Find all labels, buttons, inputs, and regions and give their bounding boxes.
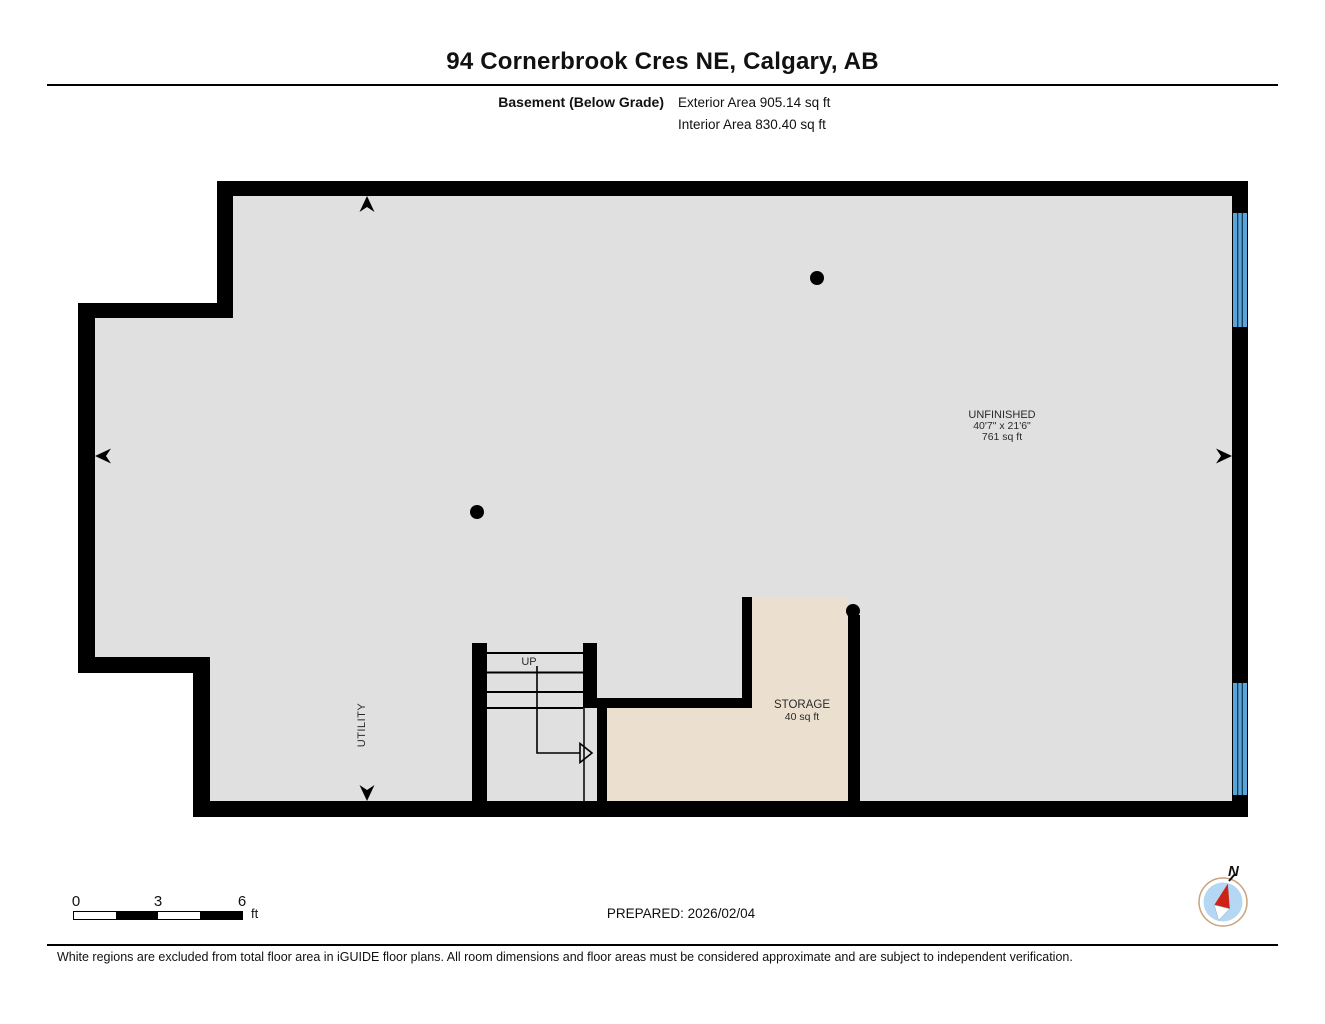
wall-bottom: [193, 801, 1248, 817]
camera-dot-3: [846, 604, 860, 618]
storage-room-label: STORAGE 40 sq ft: [722, 699, 882, 723]
storage-room-area: 40 sq ft: [722, 711, 882, 723]
scale-segment: [158, 912, 200, 919]
window-lower: [1233, 683, 1247, 795]
prepared-date: PREPARED: 2026/02/04: [481, 906, 881, 921]
wall-bottomleft-vertical: [193, 657, 210, 801]
scale-bar: [73, 911, 243, 920]
scale-segment: [116, 912, 158, 919]
wall-stair-right: [583, 643, 597, 708]
unfinished-room-area: 761 sq ft: [922, 432, 1082, 443]
wall-storage-inner-vertical: [742, 597, 752, 705]
scale-tick-0: 0: [66, 893, 86, 910]
wall-top: [217, 181, 1248, 196]
storage-room-name: STORAGE: [722, 699, 882, 711]
wall-storage-lower-left: [597, 698, 607, 801]
footer-disclaimer: White regions are excluded from total fl…: [57, 950, 1073, 964]
wall-topleft-vertical: [217, 181, 233, 318]
wall-bottomleft-step: [78, 657, 210, 673]
footer-divider: [47, 944, 1278, 946]
floorplan-drawing: [0, 0, 1325, 1024]
stairs-up-label: UP: [509, 656, 549, 668]
wall-left: [78, 303, 95, 673]
scale-unit-label: ft: [251, 906, 258, 921]
compass-north-label: N: [1228, 863, 1239, 880]
camera-dot-2: [470, 505, 484, 519]
scale-segment: [200, 912, 242, 919]
scale-tick-3: 3: [148, 893, 168, 910]
wall-stair-left: [472, 643, 487, 801]
wall-topleft-step: [78, 303, 233, 318]
scale-tick-6: 6: [232, 893, 252, 910]
floorplan-page: 94 Cornerbrook Cres NE, Calgary, AB Base…: [0, 0, 1325, 1024]
camera-dot-1: [810, 271, 824, 285]
compass-icon: [1193, 871, 1253, 931]
utility-room-label: UTILITY: [356, 685, 368, 765]
scale-segment: [74, 912, 116, 919]
window-upper: [1233, 213, 1247, 327]
unfinished-room-label: UNFINISHED 40'7" x 21'6" 761 sq ft: [922, 410, 1082, 443]
